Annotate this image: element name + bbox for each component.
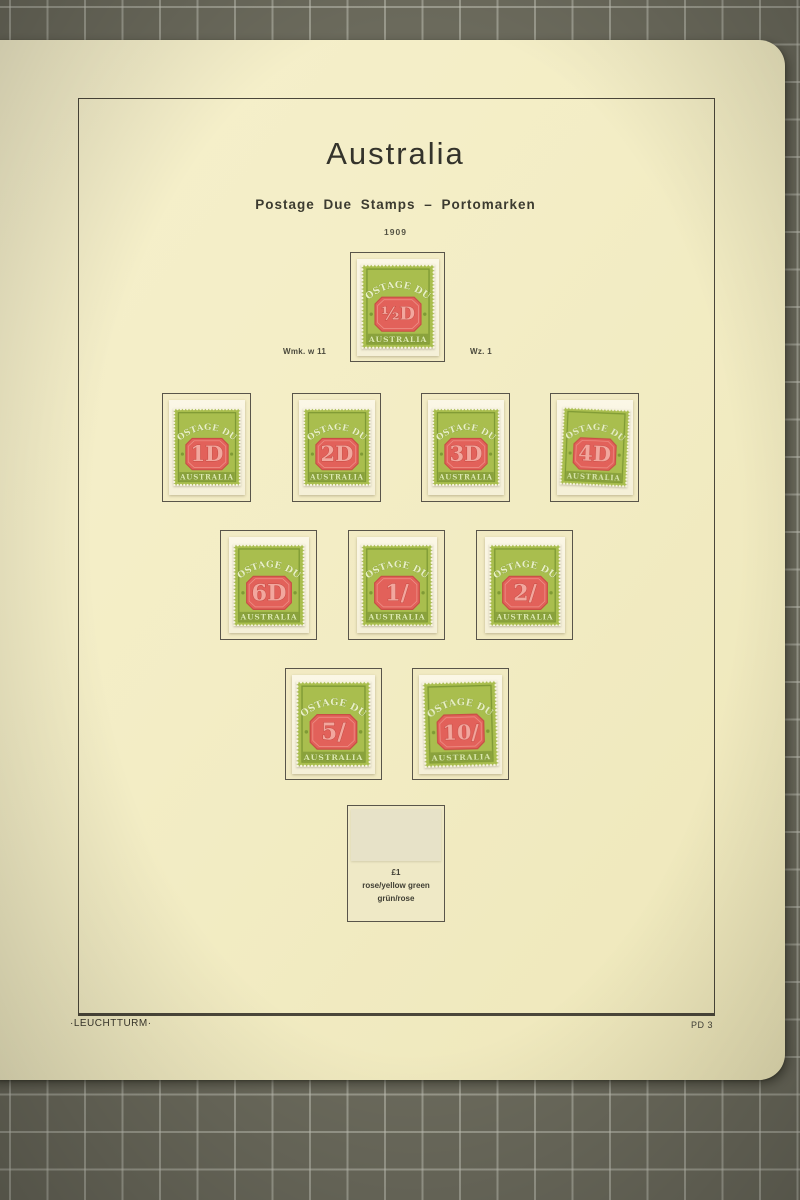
stamp-value: 10/ bbox=[442, 720, 479, 745]
svg-text:AUSTRALIA: AUSTRALIA bbox=[303, 753, 364, 762]
stamp-box-1-shilling: POSTAGE DUE 1/ AUSTRALIA bbox=[348, 530, 445, 640]
svg-text:AUSTRALIA: AUSTRALIA bbox=[309, 473, 364, 482]
svg-text:AUSTRALIA: AUSTRALIA bbox=[438, 473, 493, 482]
stamp-value: 6D bbox=[251, 580, 286, 606]
svg-text:AUSTRALIA: AUSTRALIA bbox=[495, 612, 553, 621]
stamp-box-2d: POSTAGE DUE 2D AUSTRALIA bbox=[292, 393, 381, 502]
photo-of-album-page: Australia Postage Due Stamps – Portomark… bbox=[0, 0, 800, 1200]
watermark-note-left: Wmk. w 11 bbox=[283, 347, 326, 356]
svg-text:AUSTRALIA: AUSTRALIA bbox=[179, 473, 234, 482]
stamp-5-shilling: POSTAGE DUE 5/ AUSTRALIA bbox=[296, 681, 371, 767]
svg-text:AUSTRALIA: AUSTRALIA bbox=[367, 335, 427, 344]
stamp-3d: POSTAGE DUE 3D AUSTRALIA bbox=[432, 408, 500, 486]
page-subtitle: Postage Due Stamps – Portomarken bbox=[78, 197, 713, 212]
page-title: Australia bbox=[78, 136, 713, 172]
svg-text:AUSTRALIA: AUSTRALIA bbox=[431, 752, 492, 763]
stamp-2-shilling: POSTAGE DUE 2/ AUSTRALIA bbox=[489, 544, 561, 627]
stamp-1d: POSTAGE DUE 1D AUSTRALIA bbox=[173, 408, 241, 486]
stamp-2d: POSTAGE DUE 2D AUSTRALIA bbox=[303, 408, 371, 486]
stamp-4d: POSTAGE DUE 4D AUSTRALIA bbox=[559, 407, 630, 488]
page-number: PD 3 bbox=[660, 1020, 713, 1030]
stamp-box-6d: POSTAGE DUE 6D AUSTRALIA bbox=[220, 530, 317, 640]
empty-slot-color-de: grün/rose bbox=[348, 892, 444, 905]
stamp-box-4d: POSTAGE DUE 4D AUSTRALIA bbox=[550, 393, 639, 502]
empty-slot-value: £1 bbox=[348, 866, 444, 879]
stamp-value: 1D bbox=[190, 442, 223, 467]
watermark-note-right: Wz. 1 bbox=[470, 347, 492, 356]
stamp-value: 2/ bbox=[513, 580, 538, 606]
stamp-1-shilling: POSTAGE DUE 1/ AUSTRALIA bbox=[361, 544, 433, 627]
svg-text:AUSTRALIA: AUSTRALIA bbox=[239, 612, 297, 621]
publisher-imprint: ·LEUCHTTURM· bbox=[70, 1018, 152, 1029]
stamp-value: ½D bbox=[380, 304, 414, 325]
stamp-box-2-shilling: POSTAGE DUE 2/ AUSTRALIA bbox=[476, 530, 573, 640]
stamp-value: 5/ bbox=[321, 719, 346, 746]
stamp-10-shilling: POSTAGE DUE 10/ AUSTRALIA bbox=[422, 680, 499, 768]
stamp-box-10-shilling: POSTAGE DUE 10/ AUSTRALIA bbox=[412, 668, 509, 780]
issue-year: 1909 bbox=[78, 227, 713, 237]
empty-slot-caption: £1 rose/yellow green grün/rose bbox=[348, 866, 444, 905]
stamp-value: 4D bbox=[577, 441, 611, 467]
stamp-value: 2D bbox=[320, 442, 353, 467]
stamp-value: 3D bbox=[449, 442, 482, 467]
empty-slot-mount bbox=[351, 809, 441, 861]
stamp-halfpenny: POSTAGE DUE ½D AUSTRALIA bbox=[361, 264, 435, 349]
stamp-value: 1/ bbox=[385, 580, 410, 606]
stamp-box-halfpenny: POSTAGE DUE ½D AUSTRALIA bbox=[350, 252, 445, 362]
stamp-box-1d: POSTAGE DUE 1D AUSTRALIA bbox=[162, 393, 251, 502]
empty-slot-color-en: rose/yellow green bbox=[348, 879, 444, 892]
svg-text:AUSTRALIA: AUSTRALIA bbox=[367, 612, 425, 621]
stamp-6d: POSTAGE DUE 6D AUSTRALIA bbox=[233, 544, 305, 627]
stamp-box-5-shilling: POSTAGE DUE 5/ AUSTRALIA bbox=[285, 668, 382, 780]
stamp-box-3d: POSTAGE DUE 3D AUSTRALIA bbox=[421, 393, 510, 502]
empty-stamp-slot-1-pound: £1 rose/yellow green grün/rose bbox=[347, 805, 445, 922]
